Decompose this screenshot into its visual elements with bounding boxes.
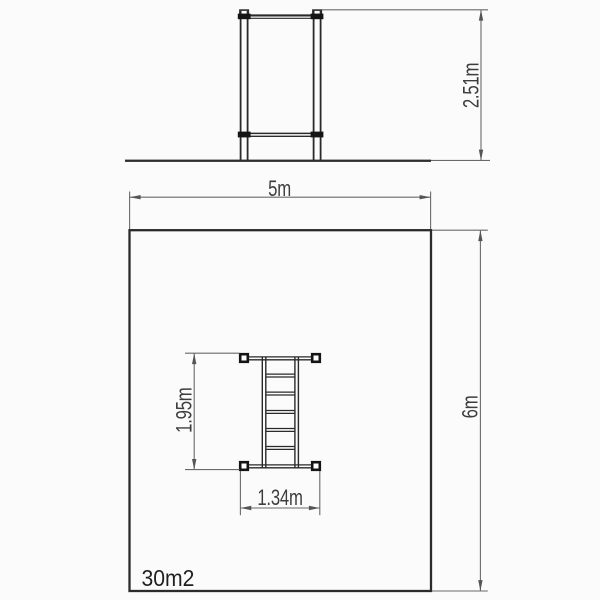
svg-text:1.95m: 1.95m xyxy=(172,388,197,433)
svg-text:30m2: 30m2 xyxy=(142,565,195,591)
svg-text:5m: 5m xyxy=(268,177,291,202)
svg-text:1.34m: 1.34m xyxy=(257,486,302,511)
svg-text:2.51m: 2.51m xyxy=(459,63,484,108)
svg-text:6m: 6m xyxy=(458,396,483,419)
